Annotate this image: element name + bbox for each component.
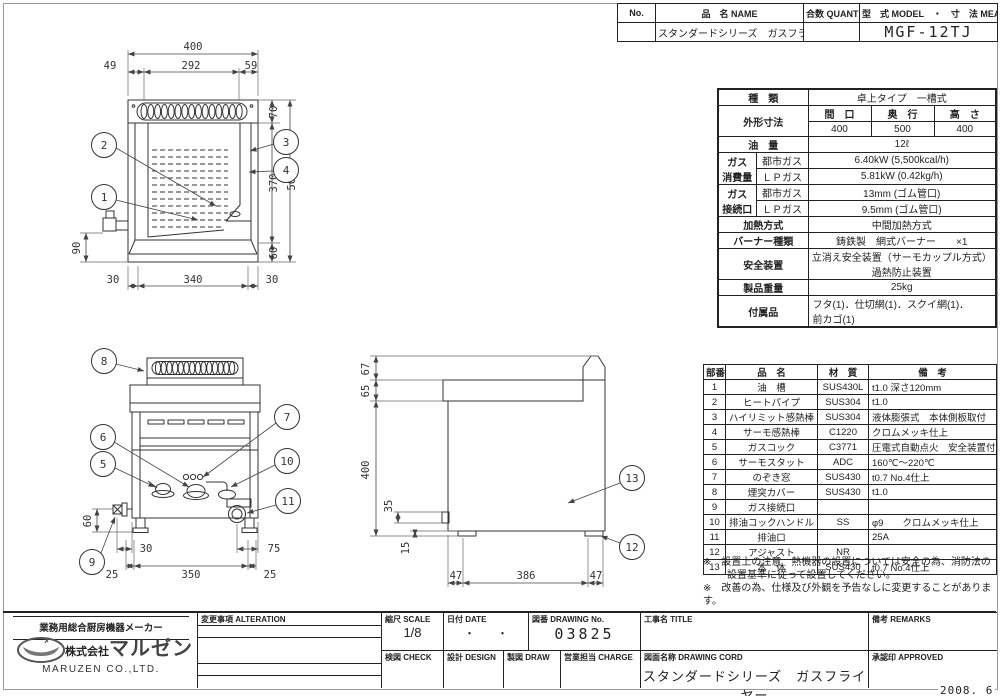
spec-gas-label-line: ガス [721, 154, 754, 169]
drain-outlet [229, 506, 246, 523]
part-name: サーモ感熱棒 [726, 425, 818, 440]
dim-label: 400 [360, 461, 372, 480]
top-title-block: No. 品 名 NAME 合数 QUANTITY 型 式 MODEL ・ 寸 法… [617, 3, 998, 42]
callout-number: 5 [100, 458, 107, 471]
parts-row: 2ヒートパイプSUS304t1.0 [704, 395, 997, 410]
quantity-value [804, 23, 860, 42]
spec-lp-gas-label: ＬＰガス [756, 169, 808, 185]
spec-kind-value: 卓上タイプ 一槽式 [808, 89, 996, 106]
part-material: SUS430L [818, 380, 869, 395]
part-material [818, 500, 869, 515]
note-line: ※ 設置上の注意 熱機器の設置については安全の為、消防法の [703, 556, 997, 569]
drawing-name-label: 図面名称 DRAWING CORD [641, 651, 868, 663]
drawing-no-label: 図番 DRAWING No. [529, 613, 640, 625]
dim-label: 292 [182, 60, 201, 72]
charge-box: 営業担当 CHARGE [560, 650, 640, 688]
drawing-no-value: 03825 [529, 625, 640, 643]
spec-heating-label: 加熱方式 [718, 217, 808, 233]
part-name: ハイリミット感熱棒 [726, 410, 818, 425]
part-remark: t1.0 [869, 395, 997, 410]
spec-height-label: 高 さ [934, 106, 996, 122]
part-name: のぞき窓 [726, 470, 818, 485]
company-block: 業務用総合厨房機器メーカー 株式会社マルゼン MARUZEN CO.,LTD. [3, 612, 198, 688]
spec-accessory-line: 前カゴ(1) [813, 311, 994, 326]
dim-label: 67 [360, 363, 372, 376]
callout-number: 2 [101, 139, 108, 152]
spec-accessory-value: フタ(1)．仕切網(1)．スクイ網(1)． 前カゴ(1) [808, 296, 996, 328]
callout-number: 10 [280, 455, 293, 468]
spec-width-value: 400 [808, 122, 871, 137]
part-no: 1 [704, 380, 726, 395]
spec-gas-label-line: 消費量 [721, 169, 754, 184]
part-name: ガスコック [726, 440, 818, 455]
callout-number: 1 [101, 191, 108, 204]
parts-row: 10排油コックハンドルSSφ9 クロムメッキ仕上 [704, 515, 997, 530]
no-header: No. [618, 4, 656, 23]
spec-city-gas-label: 都市ガス [756, 153, 808, 169]
callout-number: 3 [283, 136, 290, 149]
check-label: 検図 CHECK [382, 651, 443, 663]
part-material: C3771 [818, 440, 869, 455]
scale-box: 縮尺 SCALE 1/8 [381, 612, 443, 650]
callout-number: 7 [284, 411, 291, 424]
parts-row: 3ハイリミット感熱棒SUS304液体膨張式 本体側板取付 [704, 410, 997, 425]
callout-number: 4 [283, 164, 290, 177]
parts-row: 11排油口25A [704, 530, 997, 545]
note-line: ※ 改善の為、仕様及び外観を予告なしに変更することがあります。 [703, 582, 997, 608]
side-view: 67 65 400 35 15 47 386 47 13 [360, 356, 645, 587]
spec-depth-label: 奥 行 [871, 106, 934, 122]
model-header: 型 式 MODEL ・ 寸 法 MEASUR [860, 4, 998, 23]
spec-height-value: 400 [934, 122, 996, 137]
spec-port-city-value: 13mm (ゴム管口) [808, 185, 996, 201]
dim-label: 70 [268, 106, 280, 119]
part-remark: t1.0 [869, 485, 997, 500]
spec-accessory-line: フタ(1)．仕切網(1)．スクイ網(1)． [813, 296, 994, 311]
company-name-main: マルゼン [109, 638, 193, 660]
dim-label: 25 [264, 569, 277, 581]
spec-oil-value: 12ℓ [808, 137, 996, 153]
dim-label: 30 [266, 274, 279, 286]
spec-safety-line: 過熱防止装置 [811, 264, 994, 279]
parts-header-remark: 備 考 [869, 365, 997, 380]
parts-row: 7のぞき窓SUS430t0.7 No.4仕上 [704, 470, 997, 485]
part-no: 4 [704, 425, 726, 440]
part-remark: クロムメッキ仕上 [869, 425, 997, 440]
part-material: C1220 [818, 425, 869, 440]
part-no: 11 [704, 530, 726, 545]
dim-label: 30 [140, 543, 153, 555]
dim-label: 47 [590, 570, 603, 582]
front-view: 60 30 75 25 350 25 8 6 [80, 349, 301, 582]
spec-weight-label: 製品重量 [718, 280, 808, 296]
part-no: 8 [704, 485, 726, 500]
callout-number: 11 [281, 495, 294, 508]
front-slots [148, 420, 244, 424]
quantity-header: 合数 QUANTITY [804, 4, 860, 23]
dim-label: 350 [182, 569, 201, 581]
charge-label: 営業担当 CHARGE [561, 651, 640, 663]
part-name: 油 槽 [726, 380, 818, 395]
gas-cock-knob [152, 484, 174, 498]
dim-label: 340 [184, 274, 203, 286]
part-no: 2 [704, 395, 726, 410]
issue-date: 2008. 6 [938, 684, 995, 696]
dim-label: 386 [517, 570, 536, 582]
dim-label: 75 [268, 543, 281, 555]
model-value: MGF-12TJ [860, 23, 998, 42]
drain-cock-handle [206, 482, 236, 499]
part-material: SUS304 [818, 410, 869, 425]
drain-valve [103, 211, 128, 231]
drawing-name-value: スタンダードシリーズ ガスフライヤー [641, 666, 868, 696]
chimney-louver [155, 362, 234, 374]
parts-row: 1油 槽SUS430Lt1.0 深さ120mm [704, 380, 997, 395]
parts-header-no: 部番 [704, 365, 726, 380]
spec-gas-label-line: ガス [721, 186, 754, 201]
maruzen-logo [15, 634, 67, 664]
spec-gas-label-line: 接続口 [721, 201, 754, 216]
drawing-name-box: 図面名称 DRAWING CORD スタンダードシリーズ ガスフライヤー [640, 650, 868, 688]
part-name: ガス接続口 [726, 500, 818, 515]
parts-row: 5ガスコックC3771圧電式自動点火 安全装置付 [704, 440, 997, 455]
pilot-holes [183, 474, 202, 479]
callout-number: 13 [625, 472, 638, 485]
callout-number: 9 [89, 556, 96, 569]
part-name: 排油口 [726, 530, 818, 545]
spec-gas-port-label: ガス 接続口 [718, 185, 756, 217]
check-box: 検図 CHECK [381, 650, 443, 688]
part-material: ADC [818, 455, 869, 470]
plan-view: 400 49 292 59 70 370 60 500 90 [71, 41, 299, 290]
dim-label: 15 [400, 542, 412, 555]
alteration-label: 変更事項 ALTERATION [198, 613, 381, 625]
spec-weight-value: 25kg [808, 280, 996, 296]
part-remark: t0.7 No.4仕上 [869, 470, 997, 485]
part-remark: φ9 クロムメッキ仕上 [869, 515, 997, 530]
part-no: 7 [704, 470, 726, 485]
product-name-header: 品 名 NAME [656, 4, 804, 23]
dim-label: 30 [107, 274, 120, 286]
parts-list-table: 部番 品 名 材 質 備 考 1油 槽SUS430Lt1.0 深さ120mm 2… [703, 364, 997, 575]
spec-kind-label: 種 類 [718, 89, 808, 106]
callout-number: 6 [100, 431, 107, 444]
scale-label: 縮尺 SCALE [382, 613, 443, 625]
project-title-label: 工事名 TITLE [641, 613, 868, 625]
spec-width-label: 間 口 [808, 106, 871, 122]
dim-label: 60 [268, 247, 280, 260]
design-box: 設計 DESIGN [443, 650, 503, 688]
note-line: 設置基準に従って設置してください。 [703, 569, 997, 582]
date-box: 日付 DATE ・ ・ [443, 612, 528, 650]
alteration-row-line [197, 663, 381, 664]
part-no: 10 [704, 515, 726, 530]
dim-label: 25 [106, 569, 119, 581]
parts-row: 8煙突カバーSUS430t1.0 [704, 485, 997, 500]
dim-label: 59 [245, 60, 258, 72]
spec-dims-label: 外形寸法 [718, 106, 808, 137]
part-name: 煙突カバー [726, 485, 818, 500]
dim-label: 35 [383, 500, 395, 513]
spec-city-gas-label: 都市ガス [756, 185, 808, 201]
spec-depth-value: 500 [871, 122, 934, 137]
scale-value: 1/8 [382, 625, 443, 640]
remarks-box: 備考 REMARKS [868, 612, 997, 650]
spec-consumption-city-value: 6.40kW (5,500kcal/h) [808, 153, 996, 169]
spec-lp-gas-label: ＬＰガス [756, 201, 808, 217]
part-remark: 25A [869, 530, 997, 545]
gas-inlet-fitting [113, 503, 132, 516]
dim-label: 400 [184, 41, 203, 53]
spec-accessory-label: 付属品 [718, 296, 808, 328]
spec-safety-label: 安全装置 [718, 249, 808, 280]
part-material: SUS430 [818, 485, 869, 500]
parts-header-material: 材 質 [818, 365, 869, 380]
drawing-no-box: 図番 DRAWING No. 03825 [528, 612, 640, 650]
date-value: ・ ・ [444, 625, 528, 641]
spec-safety-value: 立消え安全装置（サーモカップル方式） 過熱防止装置 [808, 249, 996, 280]
part-remark: 圧電式自動点火 安全装置付 [869, 440, 997, 455]
part-no: 9 [704, 500, 726, 515]
part-no: 3 [704, 410, 726, 425]
approved-box: 承認印 APPROVED [868, 650, 997, 688]
approved-label: 承認印 APPROVED [869, 651, 997, 663]
specification-table: 種 類 卓上タイプ 一槽式 外形寸法 間 口 奥 行 高 さ 400 500 4… [717, 88, 997, 328]
spec-port-lp-value: 9.5mm (ゴム管口) [808, 201, 996, 217]
louver-vents [141, 105, 242, 119]
dim-label: 65 [360, 385, 372, 398]
dim-label: 49 [104, 60, 117, 72]
company-name: 株式会社マルゼン [65, 632, 193, 661]
remarks-label: 備考 REMARKS [869, 613, 997, 625]
spec-consumption-lp-value: 5.81kW (0.42kg/h) [808, 169, 996, 185]
thermostat-knob [184, 485, 209, 500]
dim-label: 47 [450, 570, 463, 582]
company-name-en: MARUZEN CO.,LTD. [23, 664, 179, 675]
date-label: 日付 DATE [444, 613, 528, 625]
dim-label: 60 [82, 515, 94, 528]
spec-safety-line: 立消え安全装置（サーモカップル方式） [811, 249, 994, 264]
installation-notes: ※ 設置上の注意 熱機器の設置については安全の為、消防法の 設置基準に従って設置… [703, 556, 997, 608]
parts-row: 9ガス接続口 [704, 500, 997, 515]
callout-number: 12 [625, 541, 638, 554]
part-no: 5 [704, 440, 726, 455]
alteration-row-line [197, 637, 381, 638]
part-material [818, 530, 869, 545]
alteration-row-line [197, 675, 381, 676]
alteration-box: 変更事項 ALTERATION [197, 612, 381, 688]
alteration-row-line [197, 625, 381, 626]
parts-row: 6サーモスタットADC160℃～220℃ [704, 455, 997, 470]
part-remark: 液体膨張式 本体側板取付 [869, 410, 997, 425]
parts-header-name: 品 名 [726, 365, 818, 380]
spec-gas-consumption-label: ガス 消費量 [718, 153, 756, 185]
callout-number: 8 [101, 355, 108, 368]
spec-heating-value: 中間加熱方式 [808, 217, 996, 233]
product-name-value: スタンダードシリーズ ガスフライヤー [656, 23, 804, 42]
part-no: 6 [704, 455, 726, 470]
part-material: SUS430 [818, 470, 869, 485]
draw-label: 製図 DRAW [504, 651, 560, 663]
design-label: 設計 DESIGN [444, 651, 503, 663]
heat-pipe-dashed-lines [152, 150, 228, 227]
part-material: SS [818, 515, 869, 530]
part-name: 排油コックハンドル [726, 515, 818, 530]
part-remark [869, 500, 997, 515]
part-name: サーモスタット [726, 455, 818, 470]
company-name-prefix: 株式会社 [65, 646, 109, 658]
drawing-sheet: 400 49 292 59 70 370 60 500 90 [0, 0, 1000, 696]
spec-oil-label: 油 量 [718, 137, 808, 153]
parts-row: 4サーモ感熱棒C1220クロムメッキ仕上 [704, 425, 997, 440]
project-title-box: 工事名 TITLE [640, 612, 868, 650]
part-name: ヒートパイプ [726, 395, 818, 410]
spec-burner-value: 鋳鉄製 網式バーナー ×1 [808, 233, 996, 249]
part-remark: 160℃～220℃ [869, 455, 997, 470]
spec-burner-label: バーナー種類 [718, 233, 808, 249]
dim-label: 90 [71, 242, 83, 255]
draw-box: 製図 DRAW [503, 650, 560, 688]
no-value [618, 23, 656, 42]
part-material: SUS304 [818, 395, 869, 410]
part-remark: t1.0 深さ120mm [869, 380, 997, 395]
